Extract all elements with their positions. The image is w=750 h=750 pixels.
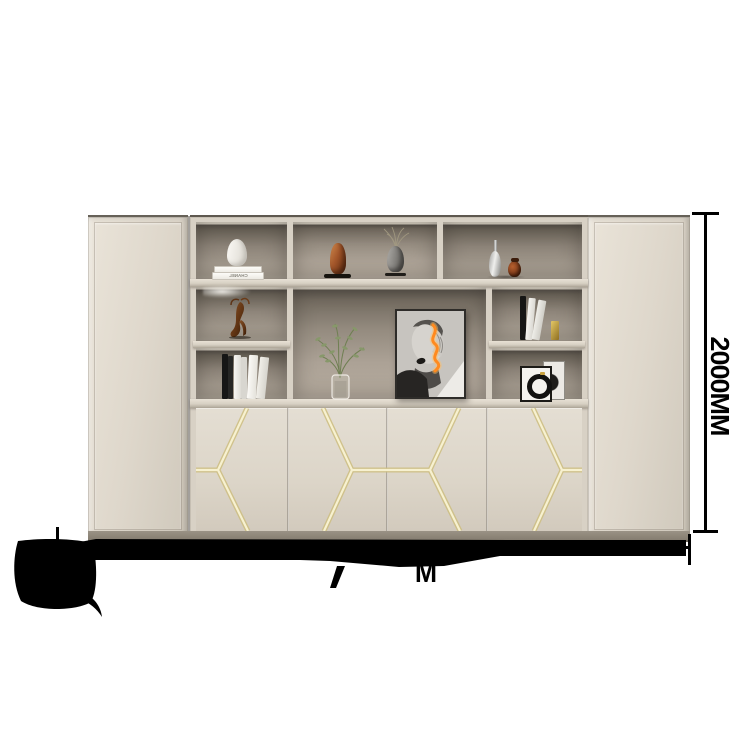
product-image: CHANEL <box>0 0 750 750</box>
redaction-marks <box>0 0 750 750</box>
covered-letter-fragment <box>330 566 345 588</box>
redaction-stroke <box>58 539 686 567</box>
redaction-tail <box>80 594 102 617</box>
